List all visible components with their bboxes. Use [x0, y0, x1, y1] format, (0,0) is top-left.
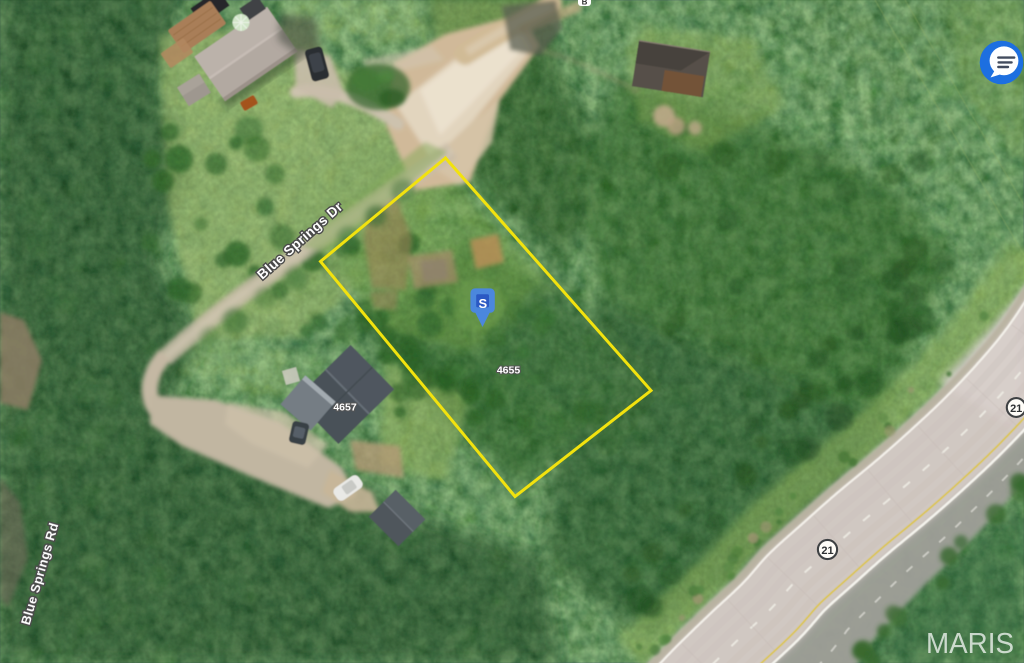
svg-text:4657: 4657 — [333, 402, 357, 414]
svg-text:4655: 4655 — [497, 365, 521, 377]
svg-text:S: S — [478, 296, 487, 311]
svg-text:B: B — [582, 0, 588, 7]
svg-text:21: 21 — [821, 545, 833, 557]
svg-text:21: 21 — [1010, 403, 1022, 415]
svg-text:MARIS: MARIS — [926, 628, 1014, 660]
